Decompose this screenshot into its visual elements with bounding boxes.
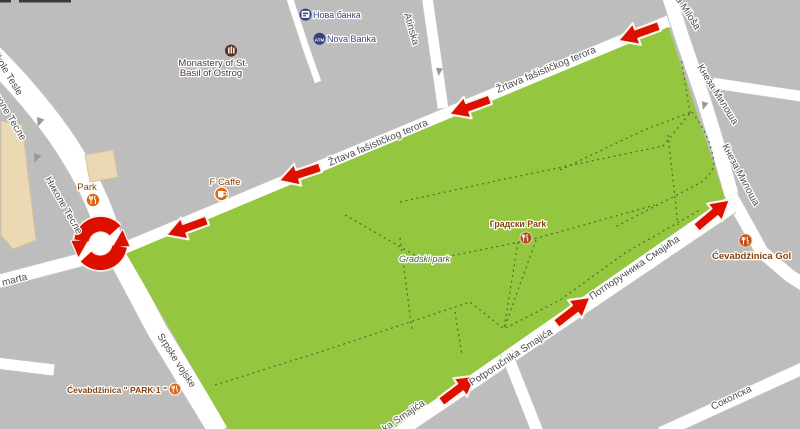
svg-text:Basil of Ostrog: Basil of Ostrog: [180, 68, 242, 79]
svg-text:Градски Park: Градски Park: [490, 219, 547, 229]
svg-text:Gradski park: Gradski park: [399, 254, 451, 264]
svg-text:F Caffe: F Caffe: [210, 177, 241, 188]
svg-text:Park: Park: [77, 182, 97, 193]
svg-text:Ćevabdžinica " PARK 1 ": Ćevabdžinica " PARK 1 ": [67, 384, 167, 395]
svg-text:ATM: ATM: [315, 37, 325, 42]
svg-text:Ćevabdžinica Gol: Ćevabdžinica Gol: [712, 250, 791, 262]
svg-text:Nova Banka: Nova Banka: [327, 34, 376, 44]
svg-text:Нова банка: Нова банка: [313, 10, 361, 20]
